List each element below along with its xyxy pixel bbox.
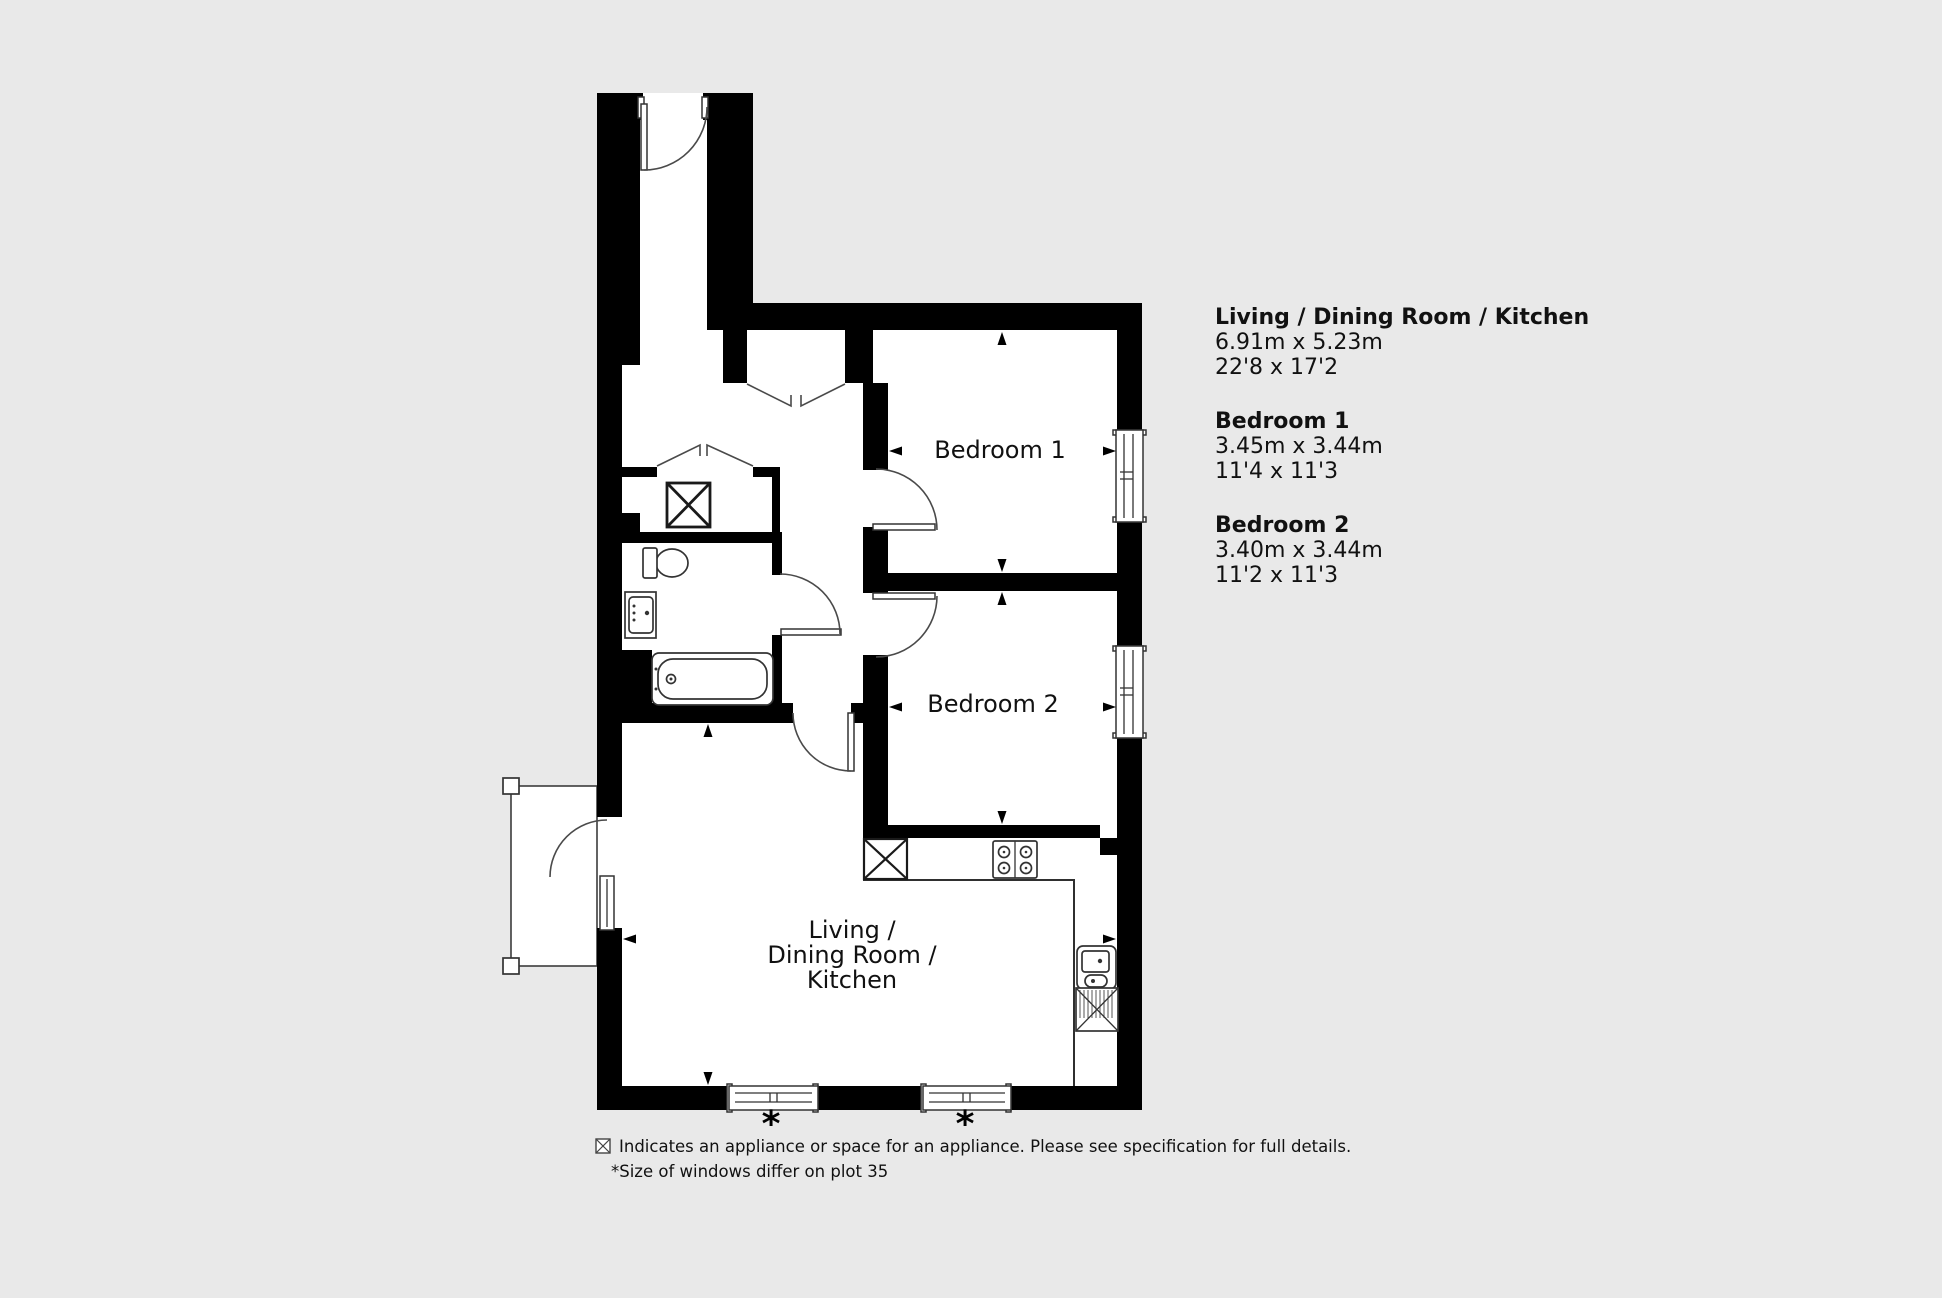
- living-label-line2: Dining Room /: [767, 941, 937, 969]
- bedroom1-label: Bedroom 1: [934, 436, 1065, 464]
- appliance-symbol-icon: [595, 1138, 611, 1158]
- dimensions-panel: Living / Dining Room / Kitchen 6.91m x 5…: [1215, 305, 1589, 588]
- bedroom2-label: Bedroom 2: [927, 690, 1058, 718]
- room-imperial-size: 11'4 x 11'3: [1215, 459, 1589, 484]
- dimension-entry: Bedroom 2 3.40m x 3.44m 11'2 x 11'3: [1215, 513, 1589, 588]
- dimension-entry: Bedroom 1 3.45m x 3.44m 11'4 x 11'3: [1215, 409, 1589, 484]
- kitchen-sink: [1077, 946, 1116, 989]
- living-label-line3: Kitchen: [807, 966, 897, 994]
- bedroom1-window: [1113, 430, 1146, 522]
- room-name: Bedroom 2: [1215, 513, 1589, 538]
- room-metric-size: 6.91m x 5.23m: [1215, 330, 1589, 355]
- room-name: Bedroom 1: [1215, 409, 1589, 434]
- room-imperial-size: 11'2 x 11'3: [1215, 563, 1589, 588]
- basin: [625, 592, 656, 638]
- legend-windows-note: *Size of windows differ on plot 35: [611, 1162, 888, 1181]
- bedroom2-window: [1113, 646, 1146, 738]
- balcony-corner-post: [503, 778, 519, 794]
- living-label-line1: Living /: [808, 916, 896, 944]
- floor-plan: Bedroom 1 Bedroom 2 Living / Dining Room…: [0, 0, 1942, 1294]
- room-imperial-size: 22'8 x 17'2: [1215, 355, 1589, 380]
- appliance-space-dishwasher-icon: [1076, 988, 1118, 1031]
- hob: [993, 841, 1037, 878]
- floorplan-page: Bedroom 1 Bedroom 2 Living / Dining Room…: [0, 0, 1942, 1294]
- legend: Indicates an appliance or space for an a…: [595, 1137, 1351, 1158]
- legend-appliance-note: Indicates an appliance or space for an a…: [619, 1137, 1351, 1156]
- room-metric-size: 3.40m x 3.44m: [1215, 538, 1589, 563]
- toilet: [643, 548, 688, 578]
- bath: [652, 653, 773, 705]
- appliance-space-kitchen-icon: [864, 839, 907, 879]
- room-metric-size: 3.45m x 3.44m: [1215, 434, 1589, 459]
- balcony-corner-post: [503, 958, 519, 974]
- appliance-space-cupboard-icon: [667, 483, 710, 527]
- room-name: Living / Dining Room / Kitchen: [1215, 305, 1589, 330]
- dimension-entry: Living / Dining Room / Kitchen 6.91m x 5…: [1215, 305, 1589, 380]
